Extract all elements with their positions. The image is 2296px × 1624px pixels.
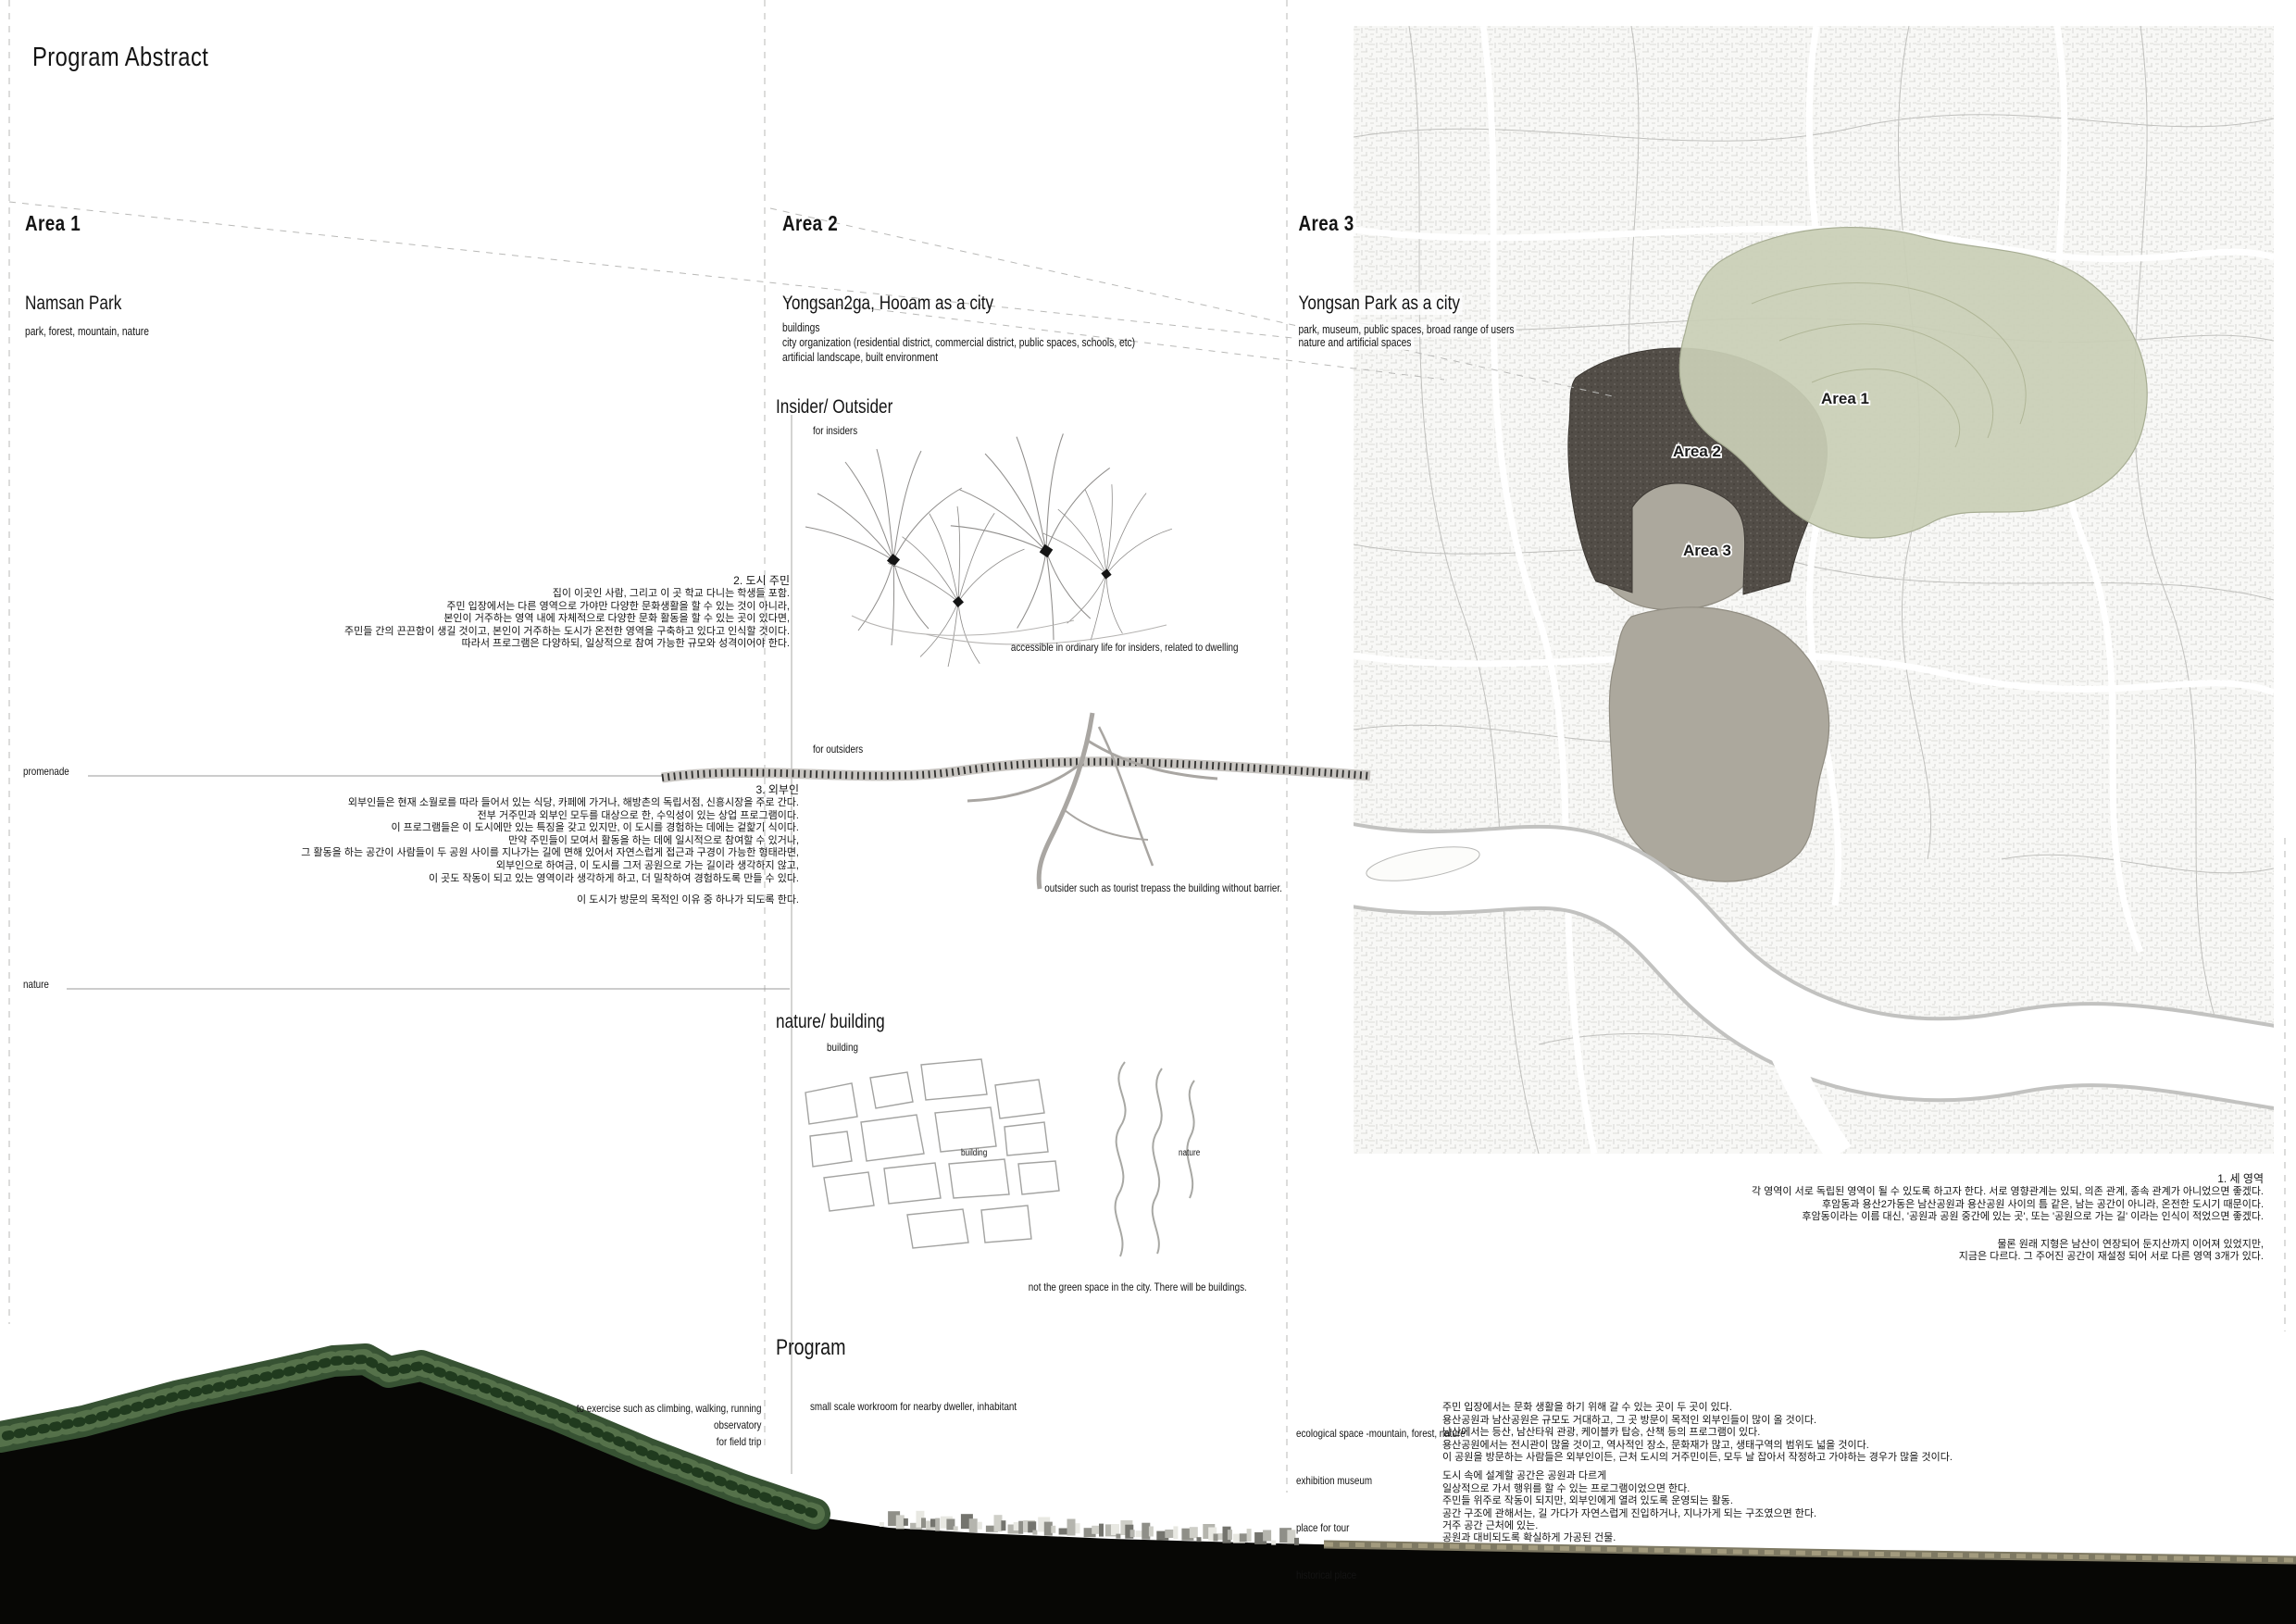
korean-three-areas: 1. 세 영역 각 영역이 서로 독립된 영역이 될 수 있도록 하고자 한다.… <box>1752 1172 2264 1264</box>
korean-outsiders: 3. 외부인 외부인들은 현재 소월로를 따라 들어서 있는 식당, 카페에 가… <box>301 783 799 907</box>
korean-city-residents: 2. 도시 주민 집이 이곳인 사람, 그리고 이 곳 학교 다니는 학생들 포… <box>344 574 790 651</box>
text-line: 만약 주민들이 모여서 활동을 하는 데에 일시적으로 참여할 수 있거나, <box>301 835 799 848</box>
area3-heading: Area 3 <box>1296 211 1356 236</box>
area3-name: Yongsan Park as a city <box>1296 293 1462 315</box>
list-item: ecological space -mountain, forest, natu… <box>1296 1426 1466 1442</box>
nature-building-sketch: building nature <box>796 1057 1241 1270</box>
text-line: 그 활동을 하는 공간이 사람들이 두 공원 사이를 지나가는 길에 면해 있어… <box>301 847 799 860</box>
outsiders-note: outsider such as tourist trepass the bui… <box>1044 881 1282 894</box>
text-line: 이 곳도 작동이 되고 있는 영역이라 생각하게 하고, 더 밀착하여 경험하도… <box>301 873 799 886</box>
area2-heading: Area 2 <box>782 211 838 236</box>
text-line: 각 영역이 서로 독립된 영역이 될 수 있도록 하고자 한다. 서로 영향관계… <box>1752 1186 2264 1199</box>
insider-sketch <box>796 426 1259 667</box>
page-title: Program Abstract <box>32 43 208 73</box>
for-insiders-label: for insiders <box>813 424 857 437</box>
nature-building-note: not the green space in the city. There w… <box>1029 1280 1247 1293</box>
text-line: 공간 구조에 관해서는, 길 가다가 자연스럽게 진입하거나, 지나가게 되는 … <box>1442 1508 1816 1521</box>
text-line: 일상적으로 가서 행위를 할 수 있는 프로그램이었으면 한다. <box>1442 1483 1816 1496</box>
insider-outsider-heading: Insider/ Outsider <box>776 396 892 418</box>
area2-detail-3: artificial landscape, built environment <box>782 350 938 365</box>
list-item: historical place <box>1296 1568 1466 1583</box>
text-line: 외부인들은 현재 소월로를 따라 들어서 있는 식당, 카페에 가거나, 해방촌… <box>301 797 799 810</box>
text-line: 도시 속에 설계할 공간은 공원과 다르게 <box>1442 1470 1816 1483</box>
nature-label: nature <box>23 978 49 991</box>
area2-detail-2: city organization (residential district,… <box>782 335 1135 350</box>
text-line: 주민 입장에서는 문화 생활을 하기 위해 갈 수 있는 곳이 두 곳이 있다. <box>1442 1402 1953 1415</box>
text-line: 이 프로그램들은 이 도시에만 있는 특징을 갖고 있지만, 이 도시를 경험하… <box>301 822 799 835</box>
text-line: to exercise such as climbing, walking, r… <box>576 1400 761 1417</box>
text-line: 거주 공간 근처에 있는. <box>1442 1520 1816 1533</box>
sketch-building-label: building <box>961 1148 987 1158</box>
area1-heading: Area 1 <box>25 211 81 236</box>
list-item: exhibition museum <box>1296 1473 1466 1489</box>
korean-program-p2: 도시 속에 설계할 공간은 공원과 다르게 일상적으로 가서 행위를 할 수 있… <box>1442 1470 1816 1533</box>
korean-three-areas-title: 1. 세 영역 <box>1752 1172 2264 1186</box>
text-line: observatory <box>576 1417 761 1433</box>
area2-detail-1: buildings <box>782 320 819 335</box>
korean-outsiders-closing: 이 도시가 방문의 목적인 이유 중 하나가 되도록 한다. <box>301 894 799 907</box>
text-line: 따라서 프로그램은 다양하되, 일상적으로 참여 가능한 규모와 성격이어야 한… <box>344 638 790 651</box>
korean-program-p3: 공원과 대비되도록 확실하게 가공된 건물. <box>1442 1532 1616 1545</box>
text-line: 주민들 위주로 작동이 되지만, 외부인에게 열려 있도록 운영되는 활동. <box>1442 1495 1816 1508</box>
area2-name: Yongsan2ga, Hooam as a city <box>782 293 993 315</box>
text-line: 본인이 거주하는 영역 내에 자체적으로 다양한 문화 활동을 할 수 있는 곳… <box>344 613 790 626</box>
korean-city-residents-title: 2. 도시 주민 <box>344 574 790 588</box>
text-line: 물론 원래 지형은 남산이 연장되어 둔지산까지 이어져 있었지만, <box>1752 1239 2264 1252</box>
list-item: place for tour <box>1296 1520 1466 1536</box>
branch-sketch <box>967 713 1217 889</box>
insiders-note: accessible in ordinary life for insiders… <box>1010 641 1238 654</box>
text-line: 주민 입장에서는 다른 영역으로 가야만 다양한 문화생활을 할 수 있는 것이… <box>344 601 790 614</box>
text-line: 전부 거주민과 외부인 모두를 대상으로 한, 수익성이 있는 상업 프로그램이… <box>301 810 799 823</box>
sketch-nature-label: nature <box>1179 1148 1200 1158</box>
nature-squiggles <box>1116 1062 1194 1256</box>
korean-program-p1: 주민 입장에서는 문화 생활을 하기 위해 갈 수 있는 곳이 두 곳이 있다.… <box>1442 1402 1953 1465</box>
text-line: 집이 이곳인 사람, 그리고 이 곳 학교 다니는 학생들 포함. <box>344 588 790 601</box>
text-line: for field trip <box>576 1433 761 1450</box>
text-line: 용산공원과 남산공원은 규모도 거대하고, 그 곳 방문이 목적인 외부인들이 … <box>1442 1415 1953 1428</box>
text-line: 외부인으로 하여금, 이 도시를 그저 공원으로 가는 길이라 생각하지 않고, <box>301 860 799 873</box>
text-line: 지금은 다르다. 그 주어진 공간이 재설정 되어 서로 다른 영역 3개가 있… <box>1752 1251 2264 1264</box>
program-heading: Program <box>776 1335 845 1361</box>
text-line: 후암동과 용산2가동은 남산공원과 용산공원 사이의 틈 같은, 남는 공간이 … <box>1752 1199 2264 1212</box>
area1-name: Namsan Park <box>25 293 121 315</box>
text-line: 주민들 간의 끈끈함이 생길 것이고, 본인이 거주하는 도시가 온전한 영역을… <box>344 626 790 639</box>
for-outsiders-label: for outsiders <box>813 743 863 756</box>
program-left-notes: to exercise such as climbing, walking, r… <box>536 1400 761 1450</box>
building-blocks <box>805 1059 1059 1248</box>
presentation-board: Area 1 Area 2 Area 3 <box>0 0 2296 1624</box>
building-column-label: building <box>827 1041 858 1054</box>
text-line: 후암동이라는 이름 대신, '공원과 공원 중간에 있는 곳', 또는 '공원으… <box>1752 1211 2264 1224</box>
mountain-panorama <box>0 1333 2296 1624</box>
program-center-note: small scale workroom for nearby dweller,… <box>810 1400 1017 1413</box>
text-line: 이 공원을 방문하는 사람들은 외부인이든, 근처 도시의 거주민이든, 모두 … <box>1442 1452 1953 1465</box>
text-line: 용산공원에서는 전시관이 많을 것이고, 역사적인 장소, 문화재가 많고, 생… <box>1442 1440 1953 1453</box>
korean-outsiders-title: 3. 외부인 <box>301 783 799 797</box>
promenade-label: promenade <box>23 765 69 778</box>
text-line: 남산에서는 등산, 남산타워 관광, 케이블카 탑승, 산책 등의 프로그램이 … <box>1442 1427 1953 1440</box>
area1-detail: park, forest, mountain, nature <box>25 324 149 339</box>
area3-detail-2: nature and artificial spaces <box>1296 335 1414 350</box>
nature-building-heading: nature/ building <box>776 1011 885 1033</box>
